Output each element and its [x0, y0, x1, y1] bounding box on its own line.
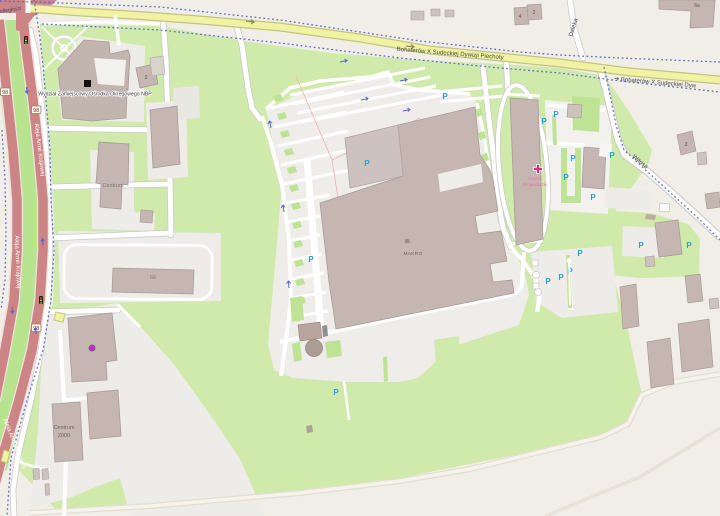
svg-text:P: P	[638, 241, 644, 250]
svg-text:P: P	[442, 92, 448, 101]
svg-text:Szpital: Szpital	[528, 176, 542, 181]
svg-text:2: 2	[533, 10, 536, 16]
svg-text:P: P	[570, 154, 576, 163]
svg-text:P: P	[577, 249, 583, 258]
svg-text:98: 98	[2, 90, 8, 96]
svg-text:98: 98	[33, 108, 39, 114]
svg-text:2: 2	[145, 75, 148, 81]
svg-text:6a: 6a	[694, 3, 700, 9]
svg-text:P: P	[545, 277, 551, 286]
svg-text:P: P	[553, 110, 559, 119]
svg-text:Wydział Zamiejscowy Ośrodka Ok: Wydział Zamiejscowy Ośrodka Okręgowego N…	[38, 92, 152, 98]
svg-text:P: P	[609, 151, 615, 160]
svg-text:MAKRO: MAKRO	[403, 251, 422, 257]
svg-text:2000: 2000	[58, 433, 70, 439]
svg-text:3: 3	[685, 142, 688, 148]
svg-text:4: 4	[519, 14, 522, 20]
svg-text:Centrum: Centrum	[53, 425, 75, 431]
svg-text:P: P	[563, 173, 569, 182]
svg-text:P: P	[558, 273, 564, 282]
svg-text:Wojewódzki: Wojewódzki	[523, 182, 547, 187]
svg-text:P: P	[333, 388, 339, 397]
svg-text:66: 66	[150, 275, 156, 281]
svg-text:P: P	[364, 159, 370, 168]
svg-text:Centrum: Centrum	[102, 183, 124, 189]
svg-text:P: P	[590, 193, 596, 202]
svg-text:P: P	[541, 117, 547, 126]
svg-text:P: P	[686, 241, 692, 250]
svg-text:P: P	[308, 255, 314, 264]
